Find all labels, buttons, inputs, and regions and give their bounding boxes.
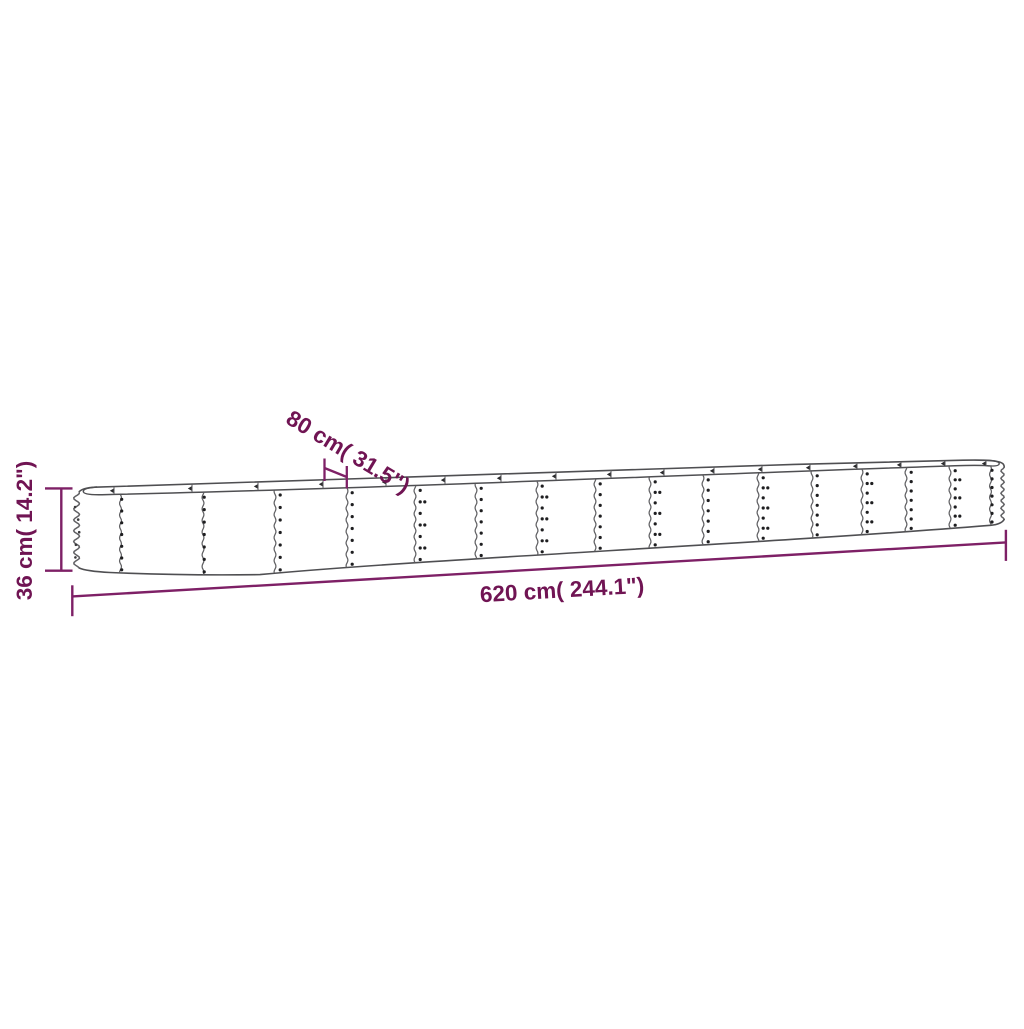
- svg-text:36 cm( 14.2"): 36 cm( 14.2"): [12, 461, 37, 601]
